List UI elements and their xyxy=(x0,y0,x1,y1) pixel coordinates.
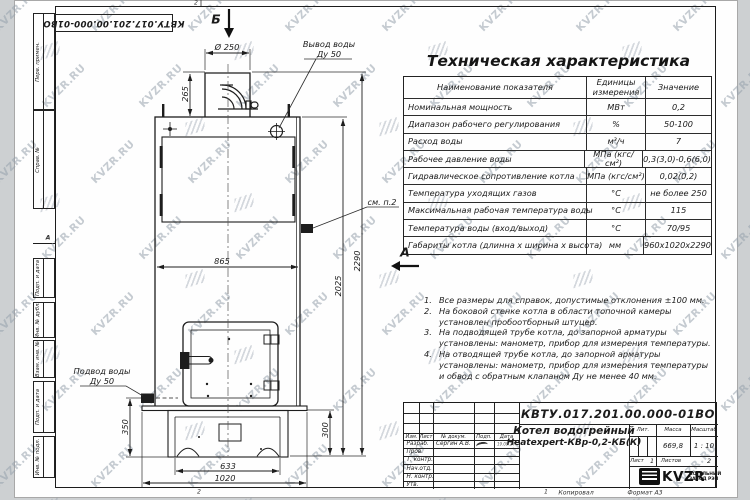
outlet-label-1: Вывод воды xyxy=(303,39,355,49)
note-number: 4. xyxy=(424,349,439,381)
zone-letter-left: А xyxy=(46,235,51,242)
spec-cell: Рабочее давление воды xyxy=(404,151,585,167)
frame-field-label: Взам. инв. № xyxy=(35,341,41,377)
scale-label: Масштаб xyxy=(691,427,717,433)
inlet-label-1: Подвод воды xyxy=(74,366,131,376)
spec-row: Максимальная рабочая температура воды°С1… xyxy=(404,202,711,219)
frame-field-label: Подп. и дата xyxy=(35,389,41,425)
tb-role: Н. контр. xyxy=(407,474,434,480)
see-note-label: см. п.2 xyxy=(367,197,396,207)
spec-cell: 7 xyxy=(646,134,711,150)
spec-row: Температура воды (вход/выход)°С70/95 xyxy=(404,219,711,236)
spec-cell: °С xyxy=(587,203,646,219)
tb-role: Утв. xyxy=(407,482,419,488)
watermark-logo-icon xyxy=(622,497,641,500)
product-name-line1: Котел водогрейный xyxy=(513,425,635,437)
spec-cell: 0,2 xyxy=(646,99,711,115)
spec-row: Диапазон рабочего регулирования%50-100 xyxy=(404,115,711,132)
spec-cell: 0,02(0,2) xyxy=(646,168,711,184)
brand-subtitle: КОТЕЛЬНЫЙЗАВОД РЭП xyxy=(689,472,721,483)
tb-role: Пров. xyxy=(407,449,424,455)
spec-header-2: Значение xyxy=(646,77,711,98)
tb-role: Т. контр. xyxy=(407,457,433,463)
dim-1020: 1020 xyxy=(215,473,236,483)
outlet-label-2: Ду 50 xyxy=(317,49,341,59)
tb-col-header: Изм. xyxy=(406,434,418,440)
dim-2025: 2025 xyxy=(333,276,343,297)
note-item: 3.На подводящей трубе котла, до запорной… xyxy=(424,327,714,349)
note-item: 1.Все размеры для справок, допустимые от… xyxy=(424,295,714,306)
view-b-label: Б xyxy=(211,12,221,27)
spec-cell: Гидравлическое сопротивление котла xyxy=(404,168,587,184)
view-a-label: А xyxy=(400,245,410,260)
note-number: 2. xyxy=(424,306,439,328)
watermark-text: KVZR.RU xyxy=(719,366,750,414)
spec-cell: м³/ч xyxy=(587,134,646,150)
spec-cell: МПа (кгс/см²) xyxy=(585,151,643,167)
tb-date: 19.09.24 xyxy=(497,442,515,447)
doc-number: КВТУ.017.201.00.000-01ВО xyxy=(521,407,715,421)
sheet-number: 1 xyxy=(650,457,654,465)
title-block: КВТУ.017.201.00.000-01ВО Котел водогрейн… xyxy=(403,402,717,488)
frame-field-label: Инв. № дубл. xyxy=(35,302,41,338)
spec-cell: Температура уходящих газов xyxy=(404,185,587,201)
spec-cell: мм xyxy=(587,237,644,253)
spec-row: Номинальная мощностьМВт0,2 xyxy=(404,98,711,115)
sheet-label: Лист xyxy=(630,458,644,464)
frame-field-0: Перв. примен. xyxy=(33,13,55,110)
spec-row: Гидравлическое сопротивление котлаМПа (к… xyxy=(404,167,711,184)
tb-col-header: Подп. xyxy=(476,434,491,440)
spec-cell: не более 250 xyxy=(646,185,711,201)
frame-field-label: Перв. примен. xyxy=(35,42,41,82)
product-name-line2: Heatexpert-КВр-0,2-КБ(К) xyxy=(507,438,642,448)
note-number: 1. xyxy=(424,295,439,306)
frame-field-label: Справ. № xyxy=(35,147,41,173)
spec-cell: Диапазон рабочего регулирования xyxy=(404,116,587,132)
top-doc-number: КВТУ.017.201.00.000-01ВО xyxy=(43,18,184,28)
note-text: Все размеры для справок, допустимые откл… xyxy=(439,295,705,306)
spec-cell: % xyxy=(587,116,646,132)
note-text: На отводящей трубе котла, до запорной ар… xyxy=(439,349,714,381)
spec-cell: 0,3(3,0)-0,6(6,0) xyxy=(643,151,711,167)
zone-number-bottom-left: 2 xyxy=(197,489,201,496)
scale-value: 1 : 10 xyxy=(694,442,714,450)
spec-cell: Температура воды (вход/выход) xyxy=(404,220,587,236)
note-text: На подводящей трубе котла, до запорной а… xyxy=(439,327,714,349)
copied-label: Копировал xyxy=(558,490,593,497)
spec-cell: Максимальная рабочая температура воды xyxy=(404,203,587,219)
mass-label: Масса xyxy=(664,427,681,433)
dim-865: 865 xyxy=(214,256,230,266)
tb-role: Разраб. xyxy=(407,441,429,447)
frame-field-label: Инв. № подл. xyxy=(35,439,41,476)
frame-field-6: Инв. № подл. xyxy=(33,436,55,478)
spec-cell: °С xyxy=(587,185,646,201)
spec-cell: Расход воды xyxy=(404,134,587,150)
frame-field-label: Подп. и дата xyxy=(35,260,41,296)
kvzr-logo-icon xyxy=(639,468,660,485)
spec-row: Рабочее давление водыМПа (кгс/см²)0,3(3,… xyxy=(404,150,711,167)
spec-row: Температура уходящих газов°Сне более 250 xyxy=(404,184,711,201)
spec-row: Расход водым³/ч7 xyxy=(404,133,711,150)
tb-col-header: Дата xyxy=(500,434,513,440)
watermark-logo-icon xyxy=(40,497,59,500)
note-item: 4.На отводящей трубе котла, до запорной … xyxy=(424,349,714,381)
note-text: На боковой стенке котла в области топочн… xyxy=(439,306,714,328)
mass-value: 669,8 xyxy=(663,442,683,450)
lit-label: Лит. xyxy=(637,427,649,433)
zone-number-top: 2 xyxy=(194,0,198,7)
watermark-logo-icon xyxy=(428,497,447,500)
dim-633: 633 xyxy=(220,461,236,471)
frame-field-1: Справ. № xyxy=(33,110,55,209)
spec-cell: °С xyxy=(587,220,646,236)
format-label: Формат А3 xyxy=(627,490,662,497)
zone-number-bottom-mid: 1 xyxy=(544,489,548,496)
frame-field-2: Подп. и дата xyxy=(33,258,55,298)
dim-2290: 2290 xyxy=(352,251,362,272)
tb-col-header: Лист xyxy=(420,434,433,440)
spec-cell: 115 xyxy=(646,203,711,219)
tb-role: Нач.отд. xyxy=(407,466,432,472)
spec-cell: 960х1020х2290 xyxy=(644,237,711,253)
watermark-text: KVZR.RU xyxy=(719,214,750,262)
inlet-label-2: Ду 50 xyxy=(90,376,114,386)
notes-list: 1.Все размеры для справок, допустимые от… xyxy=(424,295,714,381)
sheets-label: Листов xyxy=(661,458,681,464)
spec-header-1: Единицы измерения xyxy=(587,77,646,98)
dim-350: 350 xyxy=(120,419,130,435)
spec-cell: Габариты котла (длинна х ширина х высота… xyxy=(404,237,587,253)
spec-table: Наименование показателяЕдиницы измерения… xyxy=(403,76,712,255)
watermark-text: KVZR.RU xyxy=(719,62,750,110)
note-item: 2.На боковой стенке котла в области топо… xyxy=(424,306,714,328)
tb-col-header: № докум. xyxy=(441,434,466,440)
spec-cell: МПа (кгс/см²) xyxy=(587,168,646,184)
top-doc-number-stamp: КВТУ.017.201.00.000-01ВО xyxy=(55,14,173,32)
frame-field-5: Подп. и дата xyxy=(33,381,55,433)
dim-chimney-dia: Ø 250 xyxy=(215,42,240,52)
spec-cell: МВт xyxy=(587,99,646,115)
frame-field-4: Взам. инв. № xyxy=(33,340,55,378)
dim-265: 265 xyxy=(180,86,190,102)
note-number: 3. xyxy=(424,327,439,349)
spec-cell: 50-100 xyxy=(646,116,711,132)
spec-row: Габариты котла (длинна х ширина х высота… xyxy=(404,236,711,253)
tb-name: Сергин А.В. xyxy=(436,441,471,447)
drawing-sheet-scan: KVZR.RUKVZR.RUKVZR.RUKVZR.RUKVZR.RUKVZR.… xyxy=(0,0,750,500)
spec-table-title: Техническая характеристика xyxy=(405,52,712,70)
spec-cell: Номинальная мощность xyxy=(404,99,587,115)
spec-header-0: Наименование показателя xyxy=(404,77,587,98)
spec-cell: 70/95 xyxy=(646,220,711,236)
sheets-number: 2 xyxy=(707,457,711,465)
watermark-logo-icon xyxy=(234,497,253,500)
dim-300: 300 xyxy=(320,422,330,438)
frame-field-3: Инв. № дубл. xyxy=(33,302,55,338)
